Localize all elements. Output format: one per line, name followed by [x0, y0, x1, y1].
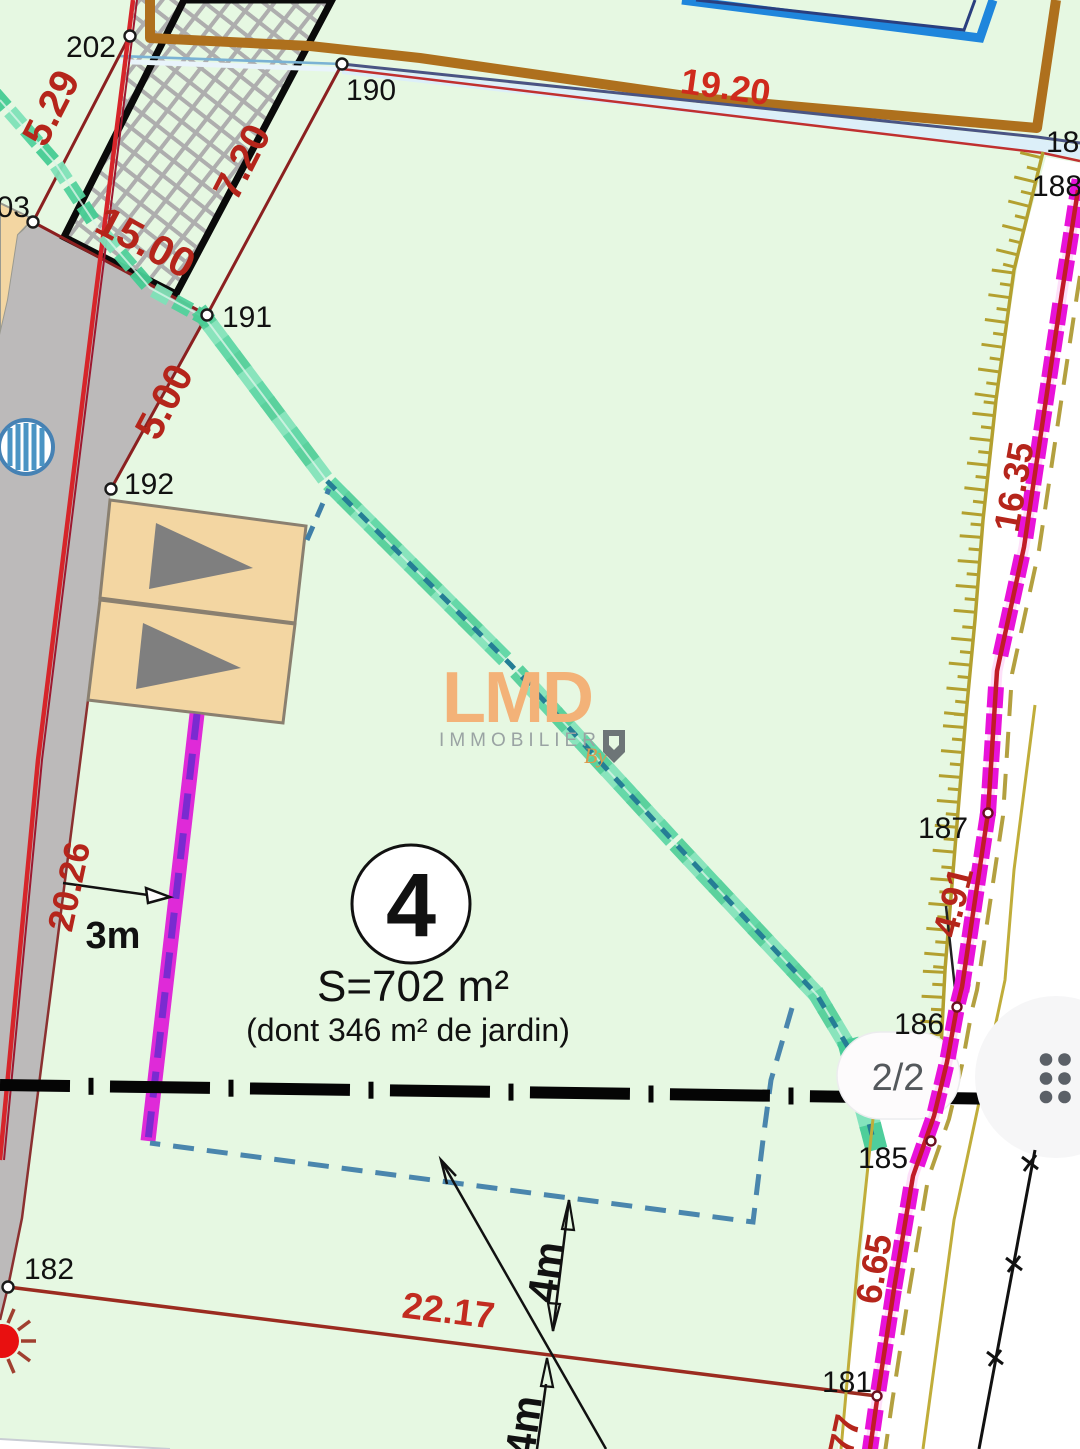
svg-text:186: 186: [894, 1008, 944, 1041]
svg-text:4: 4: [386, 856, 436, 956]
svg-text:192: 192: [124, 468, 174, 501]
svg-text:S=702 m²: S=702 m²: [317, 962, 509, 1011]
svg-text:2/2: 2/2: [872, 1057, 925, 1099]
svg-text:187: 187: [918, 812, 968, 845]
svg-text:188: 188: [1032, 170, 1080, 203]
svg-text:182: 182: [24, 1253, 74, 1286]
svg-text:185: 185: [858, 1142, 908, 1175]
svg-text:4m: 4m: [518, 1239, 573, 1306]
svg-text:LMD: LMD: [442, 658, 592, 738]
svg-text:181: 181: [822, 1366, 872, 1399]
svg-text:191: 191: [222, 301, 272, 334]
svg-text:202: 202: [66, 31, 116, 64]
svg-text:203: 203: [0, 191, 30, 224]
svg-text:(dont 346 m² de jardin): (dont 346 m² de jardin): [246, 1012, 570, 1048]
svg-text:IMMOBILIER: IMMOBILIER: [439, 730, 601, 751]
svg-text:190: 190: [346, 74, 396, 107]
svg-text:3m: 3m: [86, 915, 141, 957]
svg-text:4m: 4m: [496, 1393, 551, 1449]
svg-text:189: 189: [1046, 126, 1080, 159]
